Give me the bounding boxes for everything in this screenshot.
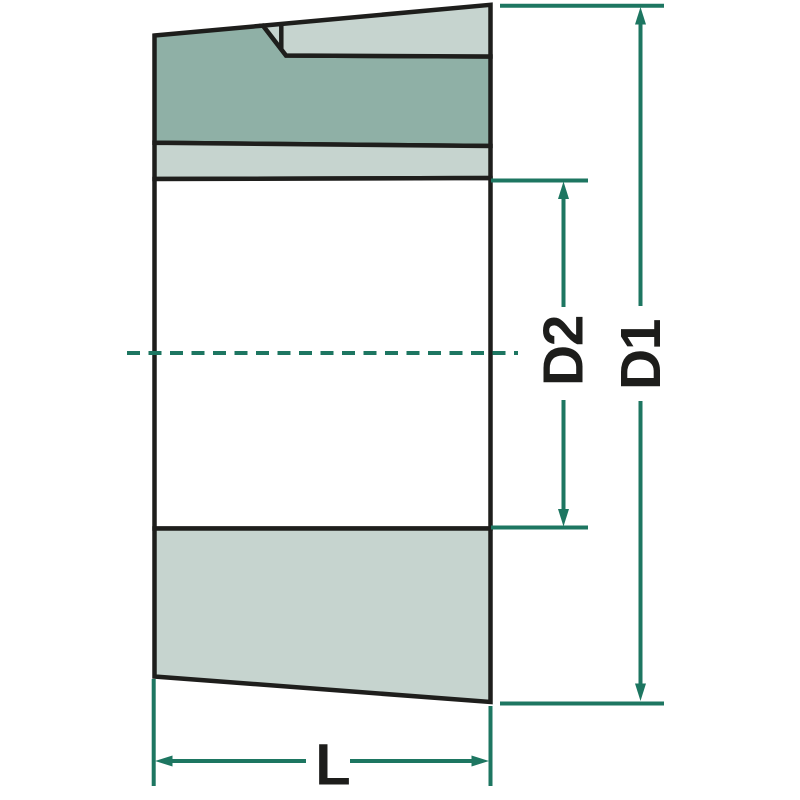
svg-text:L: L bbox=[315, 733, 350, 798]
svg-text:D2: D2 bbox=[532, 316, 596, 386]
svg-text:D1: D1 bbox=[609, 319, 673, 390]
